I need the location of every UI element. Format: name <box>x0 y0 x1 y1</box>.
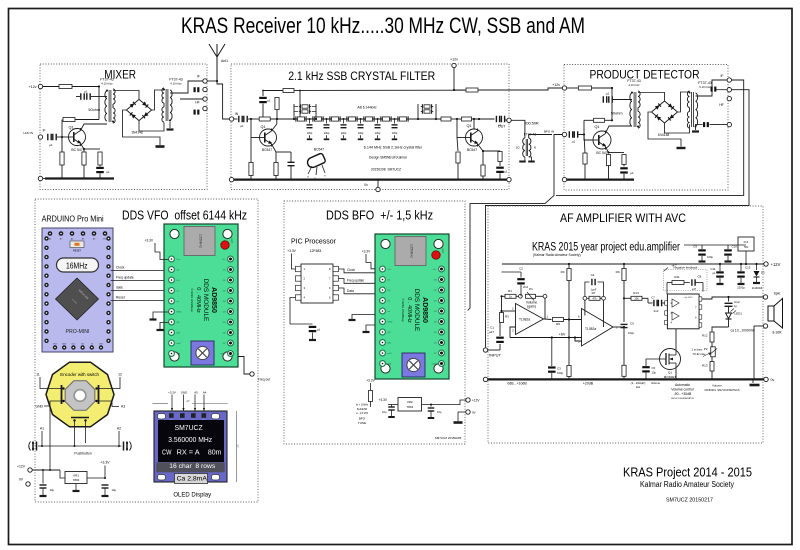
svg-text:R7: R7 <box>592 291 596 295</box>
svg-text:R3: R3 <box>505 315 509 319</box>
svg-text:2n2: 2n2 <box>654 309 659 313</box>
svg-text:1D: 1D <box>516 146 521 150</box>
svg-text:QP: QP <box>177 322 181 324</box>
svg-text:12: 12 <box>118 373 122 377</box>
svg-text:125MHz: 125MHz <box>410 244 414 258</box>
svg-text:PRO-MINI: PRO-MINI <box>66 329 90 335</box>
svg-text:rst: rst <box>388 310 391 313</box>
svg-text:4.10 tr/oz: 4.10 tr/oz <box>170 82 182 86</box>
svg-text:2: 2 <box>512 307 514 311</box>
svg-text:µ1: µ1 <box>630 171 634 175</box>
svg-text:GND: GND <box>62 343 67 345</box>
svg-text:IN: IN <box>235 112 239 116</box>
svg-text:µ1: µ1 <box>84 89 88 93</box>
svg-text:0dB...+10dB: 0dB...+10dB <box>507 381 527 385</box>
svg-text:0v: 0v <box>364 183 368 187</box>
svg-text:AD9850: AD9850 <box>421 297 428 323</box>
svg-text:+12v: +12v <box>450 58 458 62</box>
svg-text:vnN: vnN <box>177 343 181 345</box>
svg-text:1 to drain: 1 to drain <box>692 349 703 352</box>
svg-text:1N4004: 1N4004 <box>752 286 763 290</box>
svg-text:10µ: 10µ <box>382 410 387 414</box>
svg-text:BC547: BC547 <box>262 148 272 152</box>
svg-text:DDS MODULE: DDS MODULE <box>413 289 420 332</box>
svg-text:Kalmar Radio Amateur Society: Kalmar Radio Amateur Society <box>640 480 734 489</box>
svg-text:+12V: +12V <box>17 465 26 469</box>
svg-text:µ1: µ1 <box>572 139 576 143</box>
svg-text:3.560000 MHz: 3.560000 MHz <box>168 437 212 444</box>
svg-text:Ant1: Ant1 <box>221 59 228 63</box>
svg-text:0v: 0v <box>771 378 775 382</box>
svg-text:DDS MODULE: DDS MODULE <box>202 279 209 322</box>
svg-text:SM7UCZ REGENERATOR: SM7UCZ REGENERATOR <box>671 397 694 400</box>
svg-text:11: 11 <box>36 373 40 377</box>
svg-text:AF AMPLIFIER WITH AVC: AF AMPLIFIER WITH AVC <box>560 211 686 225</box>
svg-text:DDS BFO +/- 1,5 kHz: DDS BFO +/- 1,5 kHz <box>326 209 433 223</box>
svg-text:A1: A1 <box>40 427 44 431</box>
svg-text:vnB: vnB <box>388 364 392 366</box>
svg-text:R6: R6 <box>556 322 560 326</box>
svg-text:D1: D1 <box>761 271 765 275</box>
svg-text:6: 6 <box>578 315 580 319</box>
svg-text:+12v: +12v <box>29 85 37 89</box>
svg-text:µ1: µ1 <box>712 271 716 275</box>
svg-text:7803: 7803 <box>73 478 80 482</box>
svg-text:SM7UCZ 20150205: SM7UCZ 20150205 <box>435 436 462 440</box>
svg-text:QP: QP <box>388 332 392 334</box>
svg-text:2200µ: 2200µ <box>737 286 745 290</box>
svg-text:+12V: +12V <box>472 399 480 403</box>
svg-text:+3.3V: +3.3V <box>362 250 371 254</box>
svg-text:µ1: µ1 <box>240 124 244 128</box>
svg-text:rst: rst <box>177 300 180 303</box>
svg-text:FT37-43: FT37-43 <box>627 79 641 83</box>
svg-text:Freq update: Freq update <box>347 279 364 283</box>
svg-text:RX = A: RX = A <box>177 450 200 457</box>
svg-text:(gain): (gain) <box>527 305 536 309</box>
svg-text:IC1: IC1 <box>744 240 749 244</box>
svg-text:C13: C13 <box>745 266 751 270</box>
svg-text:HF: HF <box>719 103 724 107</box>
svg-text:test: test <box>636 385 641 389</box>
svg-text:+3.3V: +3.3V <box>379 398 388 402</box>
svg-text:80m: 80m <box>208 450 222 457</box>
svg-text:0 . 40MHz: 0 . 40MHz <box>406 297 412 323</box>
svg-text:78x: 78x <box>744 245 749 249</box>
svg-text:Q1: Q1 <box>260 125 265 129</box>
svg-text:Volume control: Volume control <box>671 387 694 391</box>
svg-text:1: 1 <box>547 315 549 319</box>
svg-text:IF: IF <box>43 129 46 133</box>
svg-text:A2: A2 <box>117 427 121 431</box>
svg-text:162µ: 162µ <box>628 331 634 335</box>
svg-text:100µ: 100µ <box>707 255 713 259</box>
svg-text:µ1: µ1 <box>504 170 508 174</box>
svg-text:fo + 10kHz: fo + 10kHz <box>356 404 369 407</box>
svg-text:KRAS 2015 year project edu.amp: KRAS 2015 year project edu.amplifier <box>532 242 680 254</box>
svg-text:© 0291 HS/Weep: © 0291 HS/Weep <box>190 288 194 312</box>
svg-text:Encoder with switch: Encoder with switch <box>60 372 99 377</box>
svg-text:µ1: µ1 <box>606 91 610 95</box>
svg-text:100p: 100p <box>392 132 398 135</box>
svg-text:7803: 7803 <box>406 405 413 409</box>
svg-text:TL082a: TL082a <box>519 318 530 322</box>
svg-text:BC547: BC547 <box>467 148 477 152</box>
svg-text:VR1: VR1 <box>73 474 79 478</box>
svg-text:TUNE: TUNE <box>358 421 366 425</box>
svg-text:27: 27 <box>236 444 240 448</box>
svg-text:FT37-43: FT37-43 <box>698 81 712 85</box>
svg-text:8-16R: 8-16R <box>773 331 783 335</box>
svg-text:DDS VFO offset 6144 kHz: DDS VFO offset 6144 kHz <box>122 209 247 223</box>
svg-text:6.10 tr/oz: 6.10 tr/oz <box>699 85 711 89</box>
svg-text:µ1: µ1 <box>106 170 110 174</box>
svg-text:Volume: Volume <box>651 381 660 385</box>
svg-text:(Kalmar Radio Amateur Society): (Kalmar Radio Amateur Society) <box>533 253 581 257</box>
svg-text:P2: P2 <box>704 347 708 351</box>
svg-text:4.10 tr/oz: 4.10 tr/oz <box>101 82 113 86</box>
svg-text:ARDUINO Pro Mini: ARDUINO Pro Mini <box>42 213 104 223</box>
svg-text:10µ: 10µ <box>50 488 55 492</box>
svg-text:200:50R: 200:50R <box>524 122 539 126</box>
svg-text:Automatic: Automatic <box>675 383 690 387</box>
svg-text:GND: GND <box>388 322 393 324</box>
svg-text:5: 5 <box>578 340 580 344</box>
svg-text:Freq update: Freq update <box>116 275 134 279</box>
svg-text:MOSFET: MOSFET <box>664 375 677 379</box>
svg-text:+20dB: +20dB <box>583 381 594 385</box>
svg-text:GND: GND <box>177 312 182 314</box>
svg-text:R11: R11 <box>674 275 680 279</box>
svg-text:C6: C6 <box>652 366 656 370</box>
svg-text:1µ: 1µ <box>734 304 737 308</box>
svg-text:Clock: Clock <box>347 268 355 272</box>
svg-text:FQ: FQ <box>388 290 391 292</box>
svg-text:20150208 SM7UCZ: 20150208 SM7UCZ <box>371 168 401 172</box>
svg-text:PRODUCT DETECTOR: PRODUCT DETECTOR <box>590 69 700 81</box>
svg-text:Design SM5NEUF,Kalmar: Design SM5NEUF,Kalmar <box>369 156 408 160</box>
svg-text:DTR: DTR <box>99 343 104 345</box>
svg-text:100p: 100p <box>341 132 347 135</box>
svg-text:+3.3V: +3.3V <box>101 461 111 465</box>
svg-text:TL082a: TL082a <box>585 327 596 331</box>
svg-text:C9: C9 <box>693 245 697 249</box>
svg-text:GND: GND <box>181 390 187 394</box>
svg-text:N: N <box>534 146 536 150</box>
svg-text:s1g 4013: s1g 4013 <box>684 297 694 299</box>
svg-text:Freq out: Freq out <box>258 378 270 382</box>
svg-text:+3.3V: +3.3V <box>287 249 297 253</box>
svg-text:100p: 100p <box>324 132 330 135</box>
svg-text:10µ: 10µ <box>437 410 442 414</box>
svg-text:A3: A3 <box>121 405 125 409</box>
svg-text:LED: LED <box>441 248 443 253</box>
svg-text:C4: C4 <box>591 273 595 277</box>
svg-text:GND: GND <box>432 364 437 366</box>
svg-text:µ47: µ47 <box>489 330 494 334</box>
svg-text:© 0291 HS/Weep: © 0291 HS/Weep <box>401 298 405 322</box>
svg-text:vnN: vnN <box>388 353 392 355</box>
svg-text:C1: C1 <box>490 326 494 330</box>
svg-text:TO-92 case: TO-92 case <box>692 353 706 356</box>
svg-text:A5: A5 <box>194 390 198 394</box>
svg-text:E: E <box>324 176 326 178</box>
svg-text:3: 3 <box>512 329 514 333</box>
svg-text:µ47: µ47 <box>692 288 697 291</box>
svg-text:HF: HF <box>195 101 200 105</box>
svg-text:C2: C2 <box>519 267 523 271</box>
svg-text:47k: 47k <box>592 296 597 300</box>
svg-text:LF/D IN: LF/D IN <box>23 131 33 135</box>
svg-text:2n2: 2n2 <box>523 285 528 289</box>
svg-text:C5: C5 <box>630 322 634 326</box>
svg-text:0V: 0V <box>19 478 24 482</box>
svg-text:+/- 1,5 kHz: +/- 1,5 kHz <box>356 412 369 415</box>
svg-text:GND: GND <box>221 354 226 356</box>
svg-text:C10: C10 <box>732 245 738 249</box>
svg-text:SM7UCZ: SM7UCZ <box>175 425 204 432</box>
svg-text:2.1 kHz SSB CRYSTAL FILTER: 2.1 kHz SSB CRYSTAL FILTER <box>288 71 435 83</box>
svg-text:16 char 8 rows: 16 char 8 rows <box>169 463 215 470</box>
svg-text:+3.3V: +3.3V <box>168 390 176 394</box>
svg-text:GND: GND <box>35 405 43 409</box>
svg-text:0V: 0V <box>472 411 476 415</box>
svg-text:OLED Display: OLED Display <box>173 491 211 498</box>
svg-text:10µ: 10µ <box>652 371 657 375</box>
svg-text:C12: C12 <box>734 300 740 304</box>
svg-text:1µnF: 1µnF <box>591 288 597 292</box>
svg-text:Negative feedback: Negative feedback <box>674 265 698 269</box>
svg-text:C8: C8 <box>698 275 702 279</box>
svg-text:10µ: 10µ <box>112 488 117 492</box>
svg-text:+4.7: +4.7 <box>671 263 677 267</box>
svg-text:100p: 100p <box>375 132 381 135</box>
svg-text:16MHz: 16MHz <box>66 261 88 270</box>
svg-text:data: data <box>116 285 123 289</box>
svg-text:12F683: 12F683 <box>310 249 322 253</box>
svg-text:100p: 100p <box>358 132 364 135</box>
svg-text:0 . 40MHz: 0 . 40MHz <box>195 287 201 313</box>
svg-text:VR2: VR2 <box>407 400 413 404</box>
svg-text:rst: rst <box>388 300 391 303</box>
svg-text:Q1: Q1 <box>594 125 599 129</box>
svg-text:Spkr: Spkr <box>774 292 782 296</box>
svg-text:QN: QN <box>388 343 392 345</box>
svg-text:FQ: FQ <box>177 280 180 282</box>
svg-text:VCC: VCC <box>71 343 76 345</box>
svg-text:100p: 100p <box>307 132 313 135</box>
svg-text:+12V: +12V <box>771 262 781 267</box>
svg-text:R12: R12 <box>702 334 708 338</box>
svg-text:20150301 SM7UCZ/SM7NCS: 20150301 SM7UCZ/SM7NCS <box>704 388 739 392</box>
svg-text:Pushbutton: Pushbutton <box>74 452 91 456</box>
svg-text:KRAS Project 2014 - 2015: KRAS Project 2014 - 2015 <box>623 466 752 480</box>
svg-text:BFO: BFO <box>359 417 366 421</box>
svg-text:LED: LED <box>230 238 232 243</box>
svg-text:Q1: Q1 <box>466 124 471 128</box>
svg-text:RESET: RESET <box>73 249 82 252</box>
svg-text:PIC Processor: PIC Processor <box>291 237 336 246</box>
svg-text:50ohm: 50ohm <box>611 111 623 115</box>
svg-text:27: 27 <box>186 399 190 403</box>
svg-text:QN: QN <box>177 333 181 335</box>
svg-text:R1: R1 <box>508 289 512 293</box>
svg-text:CW: CW <box>162 450 172 457</box>
svg-text:+6V: +6V <box>559 332 566 336</box>
svg-text:AB 6.144kHz: AB 6.144kHz <box>357 106 377 110</box>
svg-text:BC547: BC547 <box>314 148 324 152</box>
svg-text:6.144 MHz SSB 2.1kHz crystal f: 6.144 MHz SSB 2.1kHz crystal filter <box>364 146 423 150</box>
svg-text:rst: rst <box>177 290 180 293</box>
svg-text:(1...100µF): (1...100µF) <box>631 381 646 385</box>
svg-text:Volume: Volume <box>712 383 722 387</box>
svg-text:6144kHZ: 6144kHZ <box>357 408 368 411</box>
svg-text:µ1: µ1 <box>317 328 321 332</box>
svg-text:KRAS Receiver 10 kHz.....30 MH: KRAS Receiver 10 kHz.....30 MHz CW, SSB … <box>181 13 585 38</box>
svg-text:R9: R9 <box>616 270 620 274</box>
svg-text:P1: P1 <box>529 287 533 291</box>
svg-text:LED1: LED1 <box>735 312 743 316</box>
svg-text:FT37-43: FT37-43 <box>100 77 114 81</box>
svg-text:C7: C7 <box>651 296 655 300</box>
svg-text:ca 10...1000mW: ca 10...1000mW <box>730 329 755 333</box>
svg-text:4.10 tr/oz: 4.10 tr/oz <box>628 83 640 87</box>
svg-text:SM7UCZ 20150217: SM7UCZ 20150217 <box>666 497 713 503</box>
svg-text:R4: R4 <box>561 270 565 274</box>
svg-text:R13: R13 <box>702 364 708 368</box>
svg-text:BFO IN: BFO IN <box>544 129 554 133</box>
svg-text:BC 547: BC 547 <box>71 148 82 152</box>
svg-text:+3.3V: +3.3V <box>366 379 375 383</box>
svg-text:B: B <box>307 177 309 179</box>
svg-text:OUT: OUT <box>498 125 506 129</box>
svg-text:R13: R13 <box>633 291 639 295</box>
svg-text:Reset: Reset <box>116 295 125 299</box>
svg-text:+12v: +12v <box>552 83 560 87</box>
svg-text:50ohm: 50ohm <box>88 108 100 112</box>
svg-text:FT37-43: FT37-43 <box>169 77 183 81</box>
svg-text:INPUT: INPUT <box>489 353 502 358</box>
svg-text:-90...+30dB: -90...+30dB <box>674 392 692 396</box>
svg-text:C11: C11 <box>710 267 715 271</box>
svg-text:µ1: µ1 <box>49 143 53 147</box>
svg-text:Data: Data <box>347 289 354 293</box>
svg-text:A4: A4 <box>203 390 207 394</box>
svg-text:AD9850: AD9850 <box>210 287 217 313</box>
svg-text:GND: GND <box>53 343 58 345</box>
svg-text:100µ: 100µ <box>557 371 563 375</box>
svg-text:13k: 13k <box>634 296 639 300</box>
svg-text:IF: IF <box>197 75 200 79</box>
svg-text:C3: C3 <box>557 367 561 371</box>
svg-text:Clock: Clock <box>116 265 125 269</box>
svg-text:µ1: µ1 <box>267 99 271 103</box>
svg-text:Ca 2,8mA: Ca 2,8mA <box>177 476 208 483</box>
svg-text:vnB: vnB <box>177 354 181 356</box>
svg-text:Q1: Q1 <box>68 126 73 130</box>
svg-text:+3.3V: +3.3V <box>145 239 154 243</box>
svg-text:125MHz: 125MHz <box>199 234 203 248</box>
svg-text:IF: IF <box>720 74 723 78</box>
